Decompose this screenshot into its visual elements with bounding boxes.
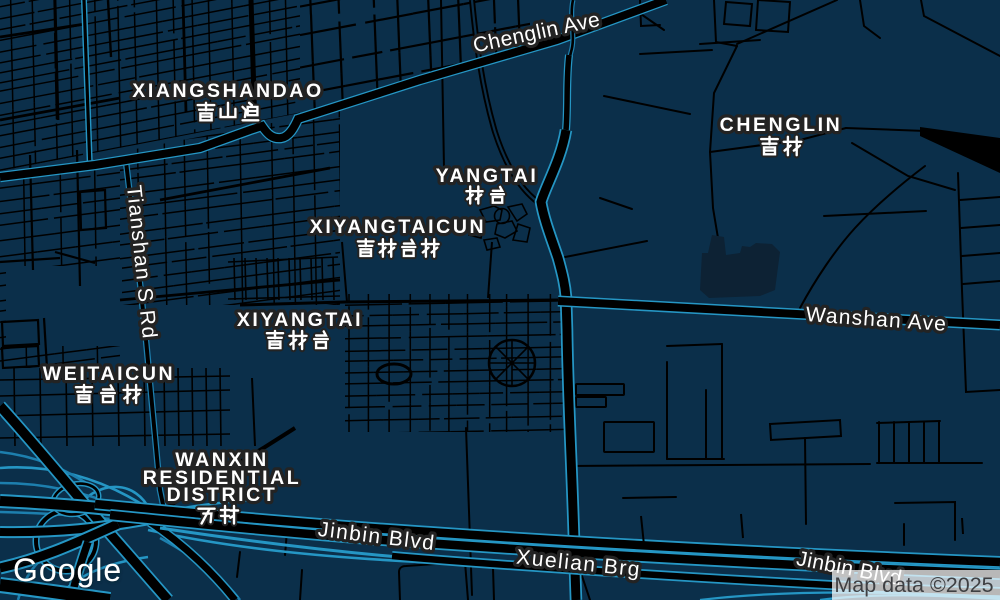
- svg-text:CHENGLIN: CHENGLIN: [720, 114, 843, 136]
- svg-text:DISTRICT: DISTRICT: [167, 484, 278, 506]
- svg-text:WEITAICUN: WEITAICUN: [43, 363, 175, 385]
- svg-text:XIYANGTAICUN: XIYANGTAICUN: [310, 216, 486, 238]
- svg-text:YANGTAI: YANGTAI: [436, 165, 539, 187]
- svg-text:Google: Google: [13, 552, 122, 588]
- svg-text:XIANGSHANDAO: XIANGSHANDAO: [132, 80, 324, 102]
- svg-text:Map data ©2025: Map data ©2025: [834, 573, 993, 597]
- svg-text:XIYANGTAI: XIYANGTAI: [237, 309, 363, 331]
